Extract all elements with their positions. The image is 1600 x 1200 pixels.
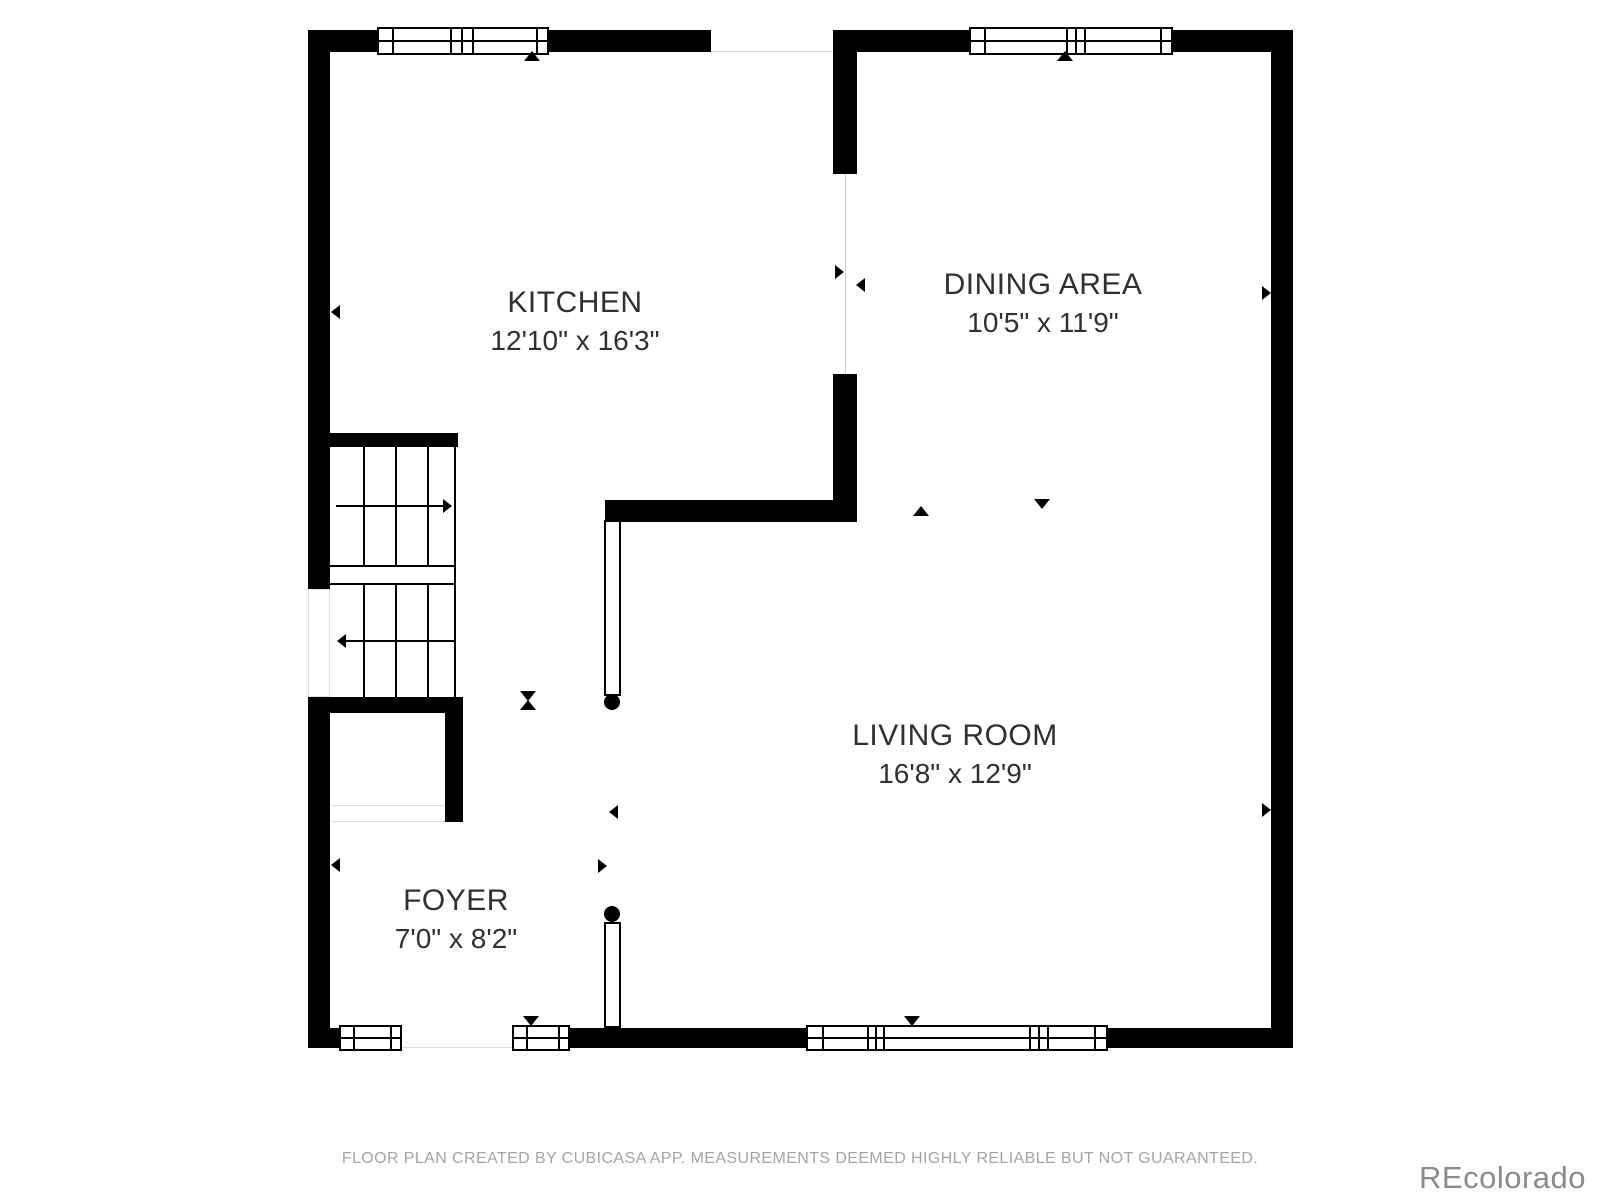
recolorado-watermark: REcolorado	[1419, 1160, 1586, 1196]
top-wall-segment	[549, 30, 711, 52]
window-post	[461, 29, 463, 53]
stair-tread-line	[363, 585, 365, 699]
room-dimensions: 12'10" x 16'3"	[490, 325, 659, 357]
room-name: FOYER	[395, 884, 517, 918]
stair-tread-line	[427, 585, 429, 699]
stairs-up-arrow-shaft	[336, 505, 446, 507]
stairs-upper-flight	[330, 447, 454, 567]
window-post	[1094, 1027, 1096, 1049]
wall-marker-left-icon	[331, 858, 340, 872]
right-wall	[1271, 30, 1293, 1048]
window-post	[536, 29, 538, 53]
kitchen-dining-wall-upper	[833, 30, 857, 174]
window-post	[526, 1027, 528, 1049]
passage-marker-left-icon	[609, 805, 618, 819]
window-post	[1038, 1027, 1040, 1049]
stairs-top-wall	[308, 433, 458, 447]
window-post	[392, 29, 394, 53]
left-wall-segment	[308, 697, 330, 1048]
window-post	[822, 1027, 824, 1049]
stairs-down-arrow-shaft	[346, 640, 454, 642]
room-label-dining-area: DINING AREA 10'5" x 11'9"	[944, 268, 1143, 339]
left-wall-opening	[308, 589, 330, 697]
room-label-foyer: FOYER 7'0" x 8'2"	[395, 884, 517, 955]
room-boundary-marker-up-icon	[913, 506, 929, 516]
window-post	[450, 29, 452, 53]
room-boundary-marker-down-icon	[1034, 499, 1050, 509]
stair-tread-line	[395, 585, 397, 699]
window-post	[883, 1027, 885, 1049]
window-post	[558, 1027, 560, 1049]
left-wall-segment	[308, 30, 330, 589]
wall-marker-left-icon	[331, 305, 340, 319]
window-post	[1084, 29, 1086, 53]
window-post	[867, 1027, 869, 1049]
room-name: LIVING ROOM	[852, 719, 1058, 753]
wall-marker-right-icon	[1262, 803, 1271, 817]
entry-door-opening	[402, 1028, 512, 1048]
kitchen-door-hinge-dot-icon	[604, 694, 620, 710]
stairs-up-arrow-icon	[443, 499, 452, 513]
window-post	[1047, 1027, 1049, 1049]
window-glass-line	[379, 40, 547, 42]
window-post	[1160, 29, 1162, 53]
disclaimer-text: FLOOR PLAN CREATED BY CUBICASA APP. MEAS…	[0, 1150, 1600, 1168]
window-glass-line	[971, 40, 1171, 42]
stairs-edge-line	[454, 447, 456, 697]
room-dimensions: 16'8" x 12'9"	[852, 758, 1058, 790]
window-post	[472, 29, 474, 53]
room-dimensions: 10'5" x 11'9"	[944, 307, 1143, 339]
window-post	[1075, 29, 1077, 53]
window-post	[1066, 29, 1068, 53]
window-marker-down-icon	[523, 1016, 539, 1026]
foyer-window-right	[512, 1025, 570, 1051]
kitchen-dining-opening-line	[845, 174, 846, 374]
window-post	[390, 1027, 392, 1049]
passage-marker-right-icon	[598, 859, 607, 873]
opening-marker-left-icon	[856, 278, 865, 292]
foyer-window-left	[339, 1025, 402, 1051]
room-name: KITCHEN	[490, 286, 659, 320]
window-marker-up-icon	[524, 51, 540, 61]
window-marker-up-icon	[1057, 51, 1073, 61]
closet-right-wall	[445, 713, 463, 822]
stairs-down-arrow-icon	[337, 634, 346, 648]
room-label-kitchen: KITCHEN 12'10" x 16'3"	[490, 286, 659, 357]
stairs-bottom-wall	[308, 697, 463, 713]
kitchen-door-leaf	[604, 520, 621, 696]
window-marker-down-icon	[904, 1016, 920, 1026]
room-dimensions: 7'0" x 8'2"	[395, 923, 517, 955]
window-post	[353, 1027, 355, 1049]
kitchen-south-wall	[605, 500, 857, 522]
window-glass-line	[808, 1037, 1106, 1039]
bottom-wall-segment	[308, 1028, 339, 1048]
foyer-door-leaf	[604, 922, 621, 1028]
closet-opening	[331, 805, 445, 822]
window-post	[1029, 1027, 1031, 1049]
room-label-living-room: LIVING ROOM 16'8" x 12'9"	[852, 719, 1058, 790]
floor-plan-canvas: KITCHEN 12'10" x 16'3" DINING AREA 10'5"…	[0, 0, 1600, 1200]
opening-marker-right-icon	[835, 265, 844, 279]
living-room-window	[806, 1025, 1108, 1051]
room-name: DINING AREA	[944, 268, 1143, 302]
foyer-door-hinge-dot-icon	[604, 906, 620, 922]
window-post	[984, 29, 986, 53]
wall-marker-right-icon	[1262, 286, 1271, 300]
window-post	[875, 1027, 877, 1049]
passage-marker-up-icon	[520, 700, 536, 710]
top-wall-opening	[711, 30, 833, 52]
